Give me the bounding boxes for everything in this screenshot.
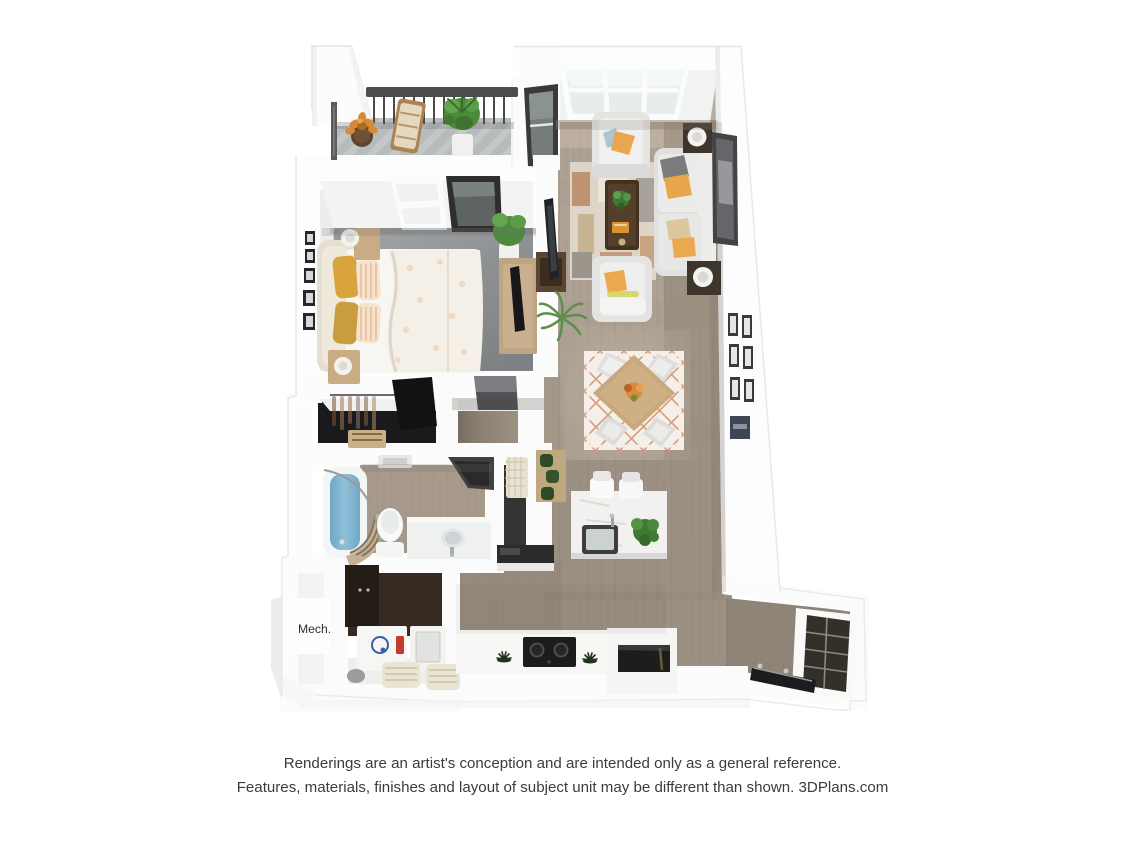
svg-text:Mech.: Mech.: [298, 622, 331, 636]
